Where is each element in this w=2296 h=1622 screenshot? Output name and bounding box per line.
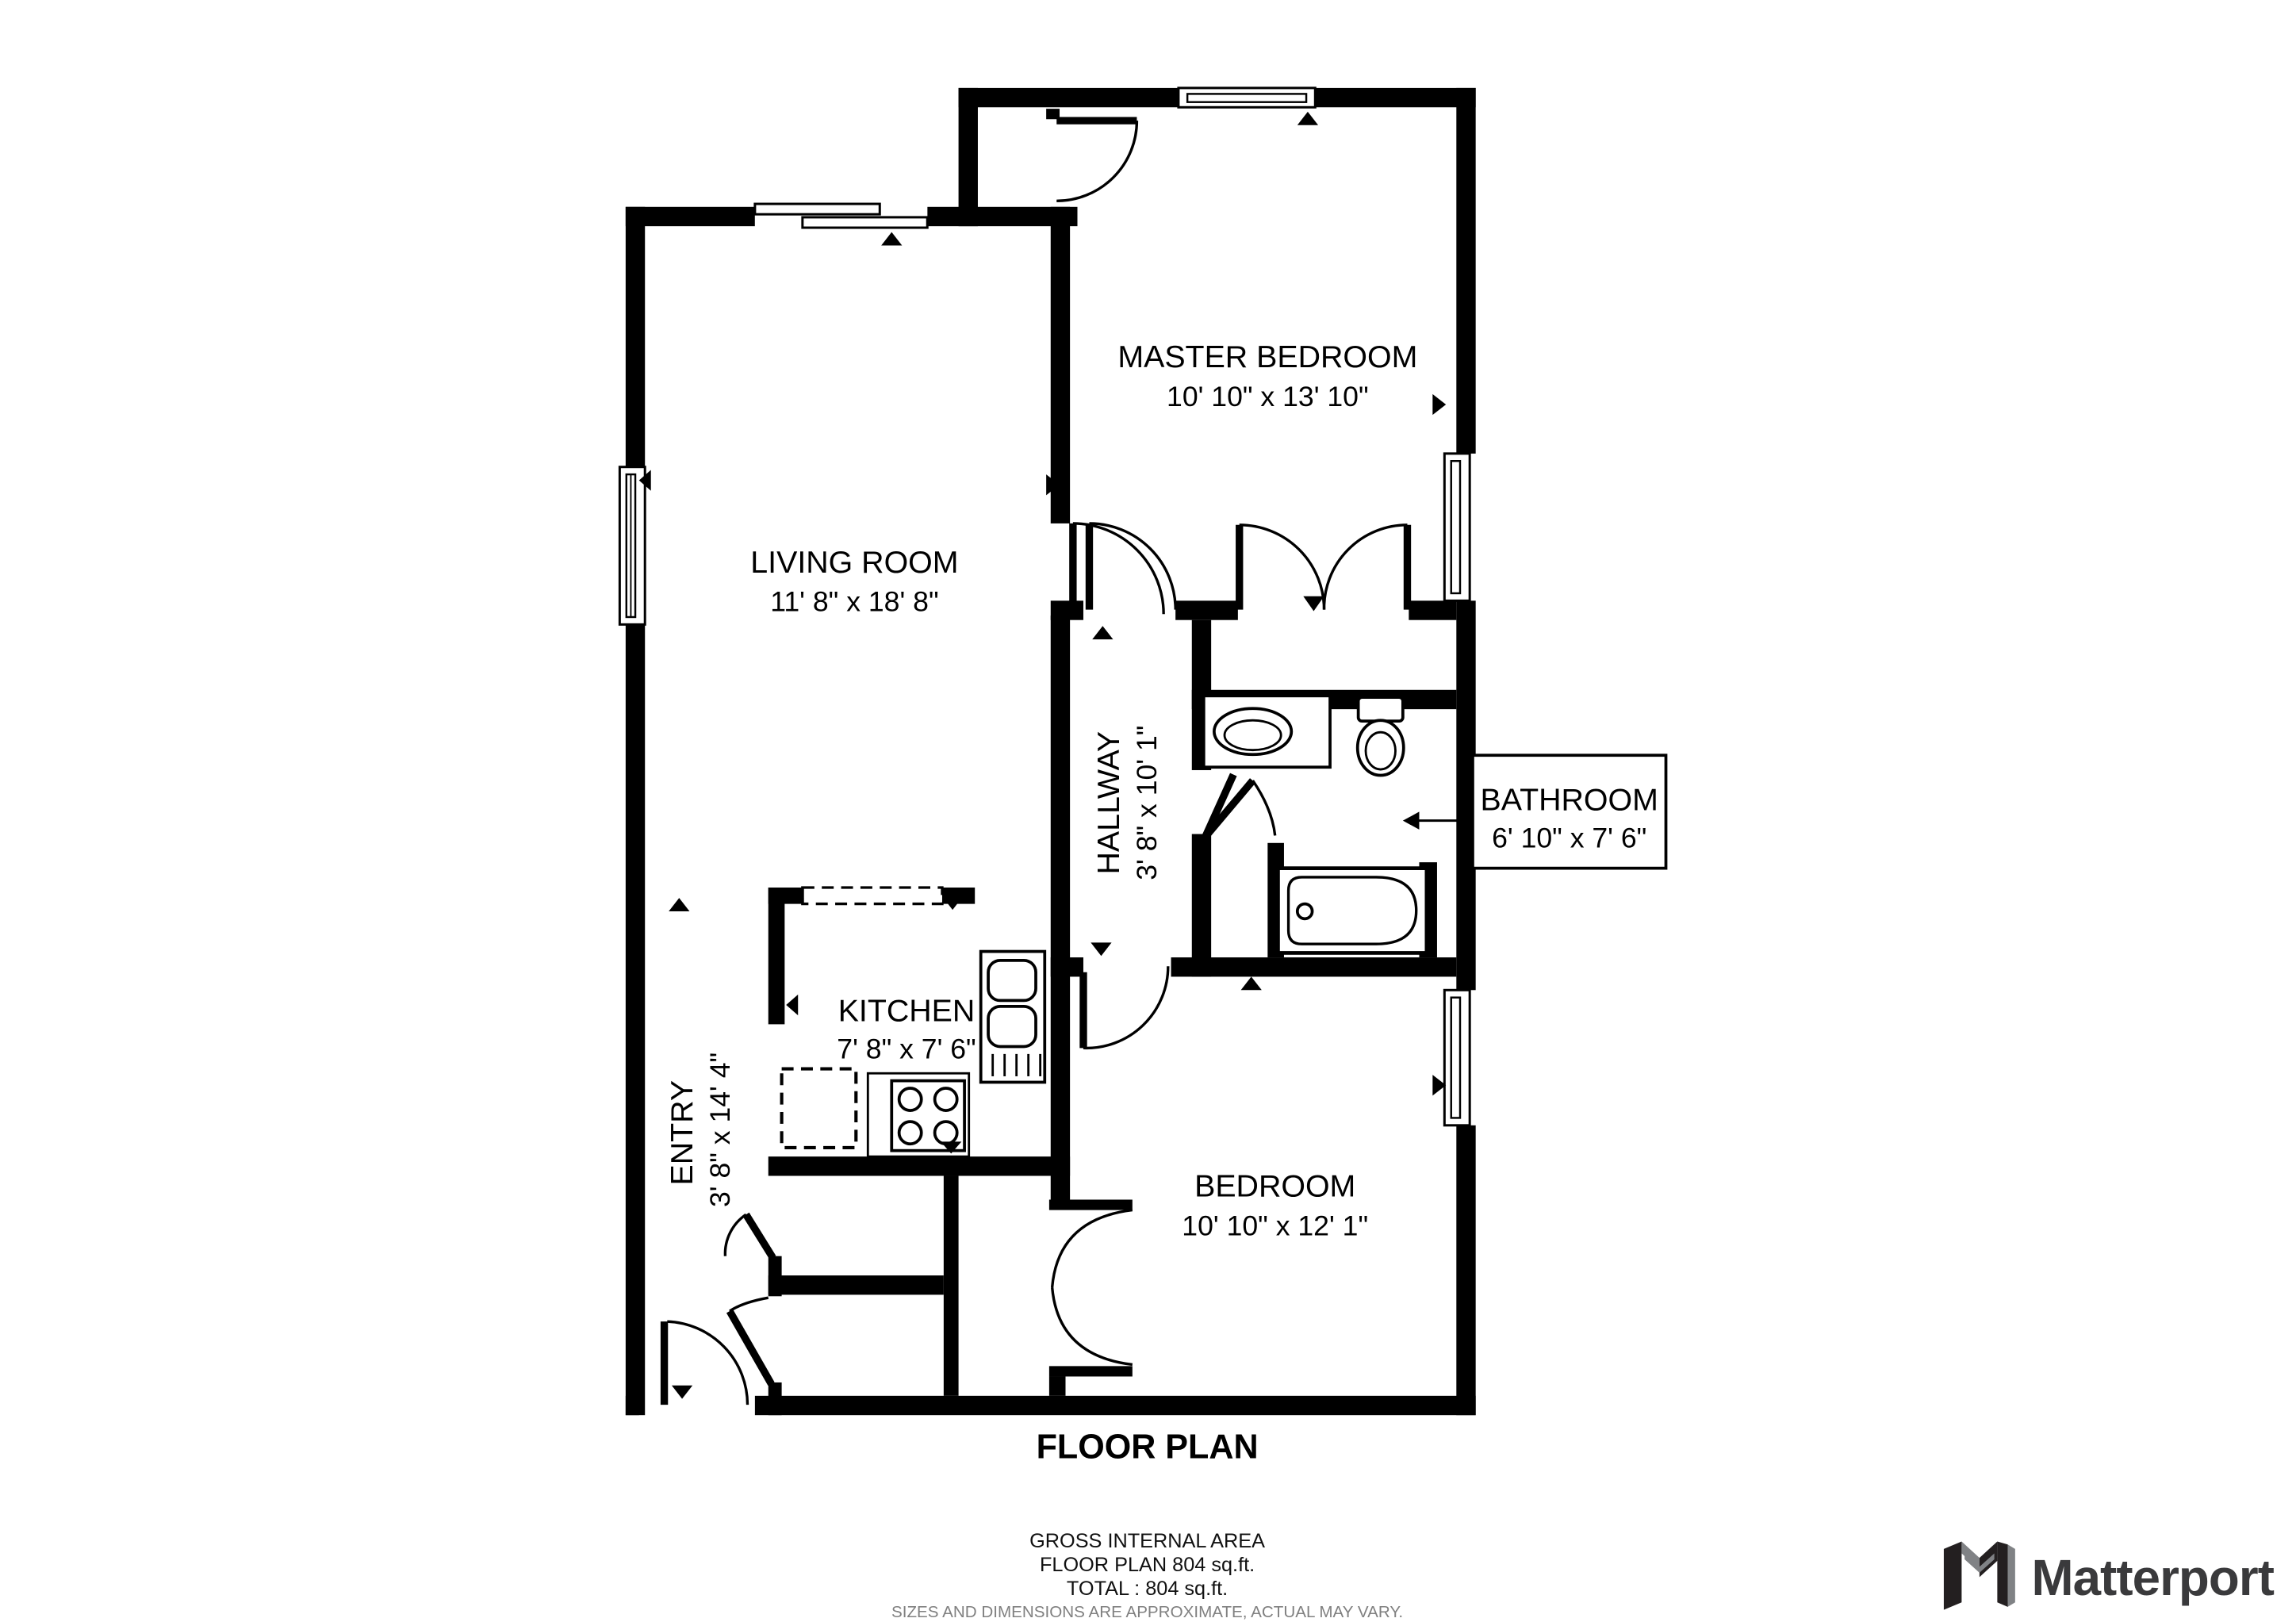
area-summary: GROSS INTERNAL AREA FLOOR PLAN 804 sq.ft… bbox=[891, 1530, 1403, 1621]
room-label: LIVING ROOM bbox=[750, 545, 958, 580]
double-door-icon bbox=[1240, 525, 1408, 612]
room-hallway: HALLWAY 3' 8" x 10' 1" bbox=[1091, 726, 1163, 880]
matterport-logo: Matterport bbox=[1944, 1541, 2275, 1609]
logo-wordmark: Matterport bbox=[2031, 1550, 2274, 1606]
room-bedroom: BEDROOM 10' 10" x 12' 1" bbox=[1182, 1169, 1368, 1242]
kitchen-sink-icon bbox=[981, 952, 1045, 1083]
room-dims: 3' 8" x 14' 4" bbox=[704, 1053, 736, 1207]
counter-opening-icon bbox=[803, 888, 942, 904]
bathroom-callout: BATHROOM 6' 10" x 7' 6" bbox=[1403, 755, 1666, 868]
summary-floor-line: FLOOR PLAN 804 sq.ft. bbox=[1040, 1554, 1255, 1576]
door-icon bbox=[1056, 121, 1137, 201]
room-entry: ENTRY 3' 8" x 14' 4" bbox=[665, 1053, 736, 1207]
floor-plan-page: MASTER BEDROOM 10' 10" x 13' 10" LIVING … bbox=[0, 0, 2296, 1622]
room-dims: 10' 10" x 13' 10" bbox=[1167, 381, 1369, 412]
window-icon bbox=[1444, 990, 1470, 1125]
logo-mark-icon bbox=[1944, 1541, 2015, 1609]
plan-title: FLOOR PLAN bbox=[1037, 1428, 1259, 1467]
room-dims: 3' 8" x 10' 1" bbox=[1131, 726, 1163, 880]
room-dims: 6' 10" x 7' 6" bbox=[1492, 822, 1646, 853]
stove-icon bbox=[868, 1073, 968, 1156]
appliance-icon bbox=[782, 1069, 857, 1148]
door-icon bbox=[1083, 966, 1168, 1048]
room-label: HALLWAY bbox=[1091, 731, 1126, 875]
room-label: BEDROOM bbox=[1194, 1169, 1355, 1204]
door-icon bbox=[665, 1321, 748, 1405]
room-kitchen: KITCHEN 7' 8" x 7' 6" bbox=[837, 994, 976, 1065]
room-label: KITCHEN bbox=[838, 994, 976, 1029]
window-icon bbox=[1444, 454, 1470, 601]
door-icon bbox=[1205, 775, 1275, 838]
room-dims: 11' 8" x 18' 8" bbox=[770, 585, 938, 617]
floor-plan-canvas: MASTER BEDROOM 10' 10" x 13' 10" LIVING … bbox=[0, 0, 2296, 1622]
window-icon bbox=[755, 201, 927, 230]
room-living-room: LIVING ROOM 11' 8" x 18' 8" bbox=[750, 545, 958, 618]
sink-icon bbox=[1204, 696, 1330, 767]
summary-disclaimer: SIZES AND DIMENSIONS ARE APPROXIMATE, AC… bbox=[891, 1603, 1403, 1621]
room-label: ENTRY bbox=[665, 1080, 700, 1186]
room-dims: 7' 8" x 7' 6" bbox=[837, 1033, 976, 1064]
summary-total-line: TOTAL : 804 sq.ft. bbox=[1067, 1578, 1228, 1600]
window-icon bbox=[619, 467, 645, 625]
room-master-bedroom: MASTER BEDROOM 10' 10" x 13' 10" bbox=[1117, 339, 1417, 412]
room-label: BATHROOM bbox=[1481, 783, 1658, 818]
toilet-icon bbox=[1358, 697, 1404, 775]
callout-arrow-icon bbox=[1403, 811, 1420, 829]
bifold-door-icon bbox=[1052, 1210, 1133, 1365]
room-dims: 10' 10" x 12' 1" bbox=[1182, 1210, 1368, 1241]
window-icon bbox=[1179, 88, 1315, 107]
room-label: MASTER BEDROOM bbox=[1117, 339, 1417, 374]
summary-heading: GROSS INTERNAL AREA bbox=[1029, 1530, 1265, 1552]
bathtub-icon bbox=[1278, 869, 1426, 953]
